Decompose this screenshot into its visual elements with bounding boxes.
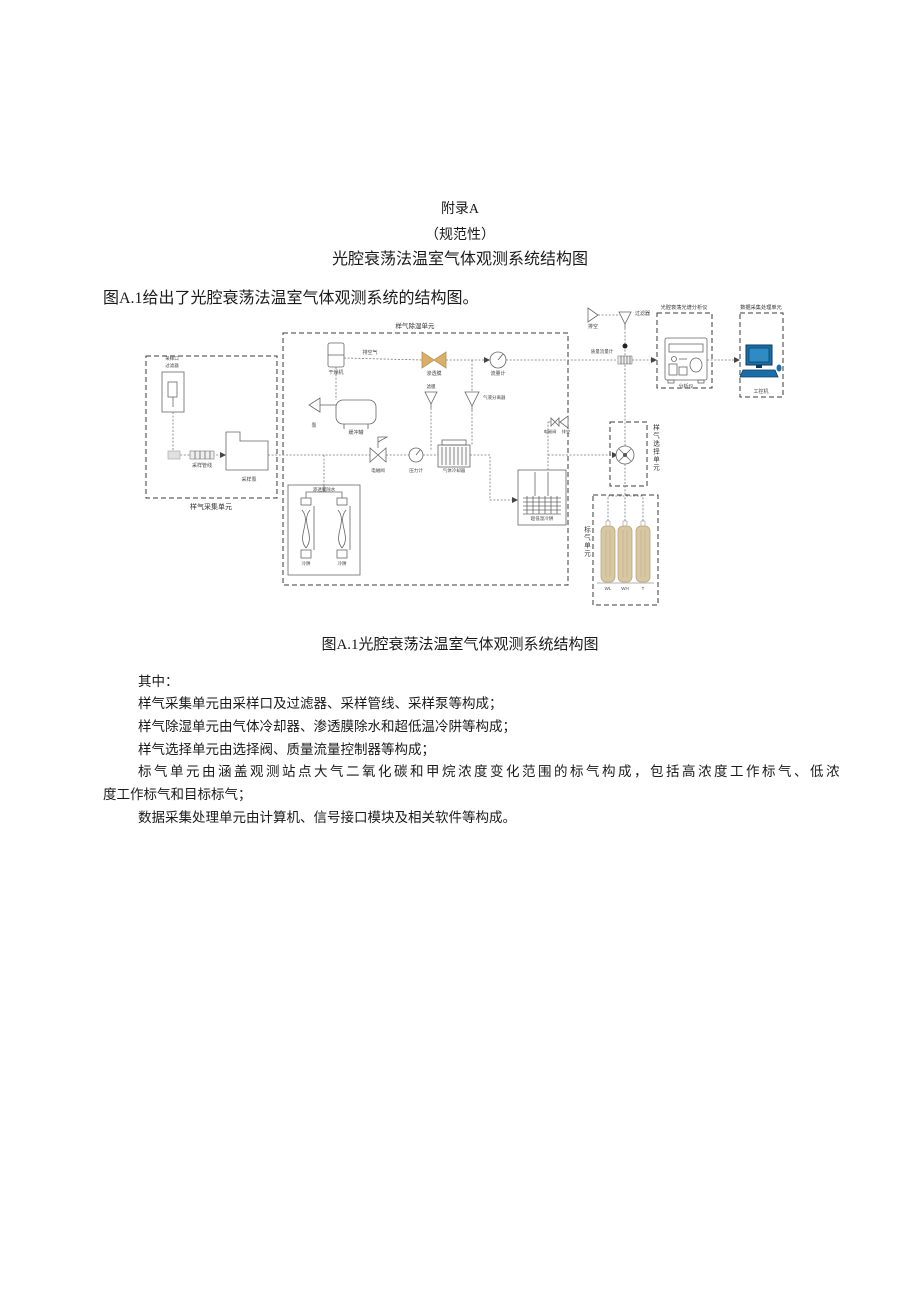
dehumid-unit-label: 样气除湿单元 (396, 324, 435, 331)
lead-in: 其中： (138, 674, 179, 691)
normative-note: （规范性） (0, 227, 920, 245)
gas-cylinders (597, 521, 654, 583)
dryer-label: 干燥机 (328, 371, 343, 376)
body-line-3: 样气选择单元由选择阀、质量流量控制器等构成； (138, 742, 435, 759)
top-vent-horn (588, 308, 620, 322)
sample-tube-connector (190, 451, 214, 459)
inlet-label: 采样口 (165, 357, 179, 362)
cylinder-high-label: WH (621, 587, 629, 592)
body-line-5: 度工作标气和目标标气； (103, 787, 252, 804)
arrow-into-analyzer (651, 357, 657, 363)
buffer-label: 缓冲罐 (348, 431, 363, 436)
solenoid-dot (623, 344, 628, 349)
internal-pump-horn (309, 398, 336, 412)
top-filter-funnel (619, 312, 631, 328)
gas-liquid-separator-funnel (465, 392, 479, 410)
trap-a-label: 冷阱 (302, 562, 311, 567)
body-line-6: 数据采集处理单元由计算机、信号接口模块及相关软件等构成。 (138, 810, 516, 827)
body-line-2: 样气除湿单元由气体冷却器、渗透膜除水和超低温冷阱等构成； (138, 719, 516, 736)
vent-air-line (344, 358, 422, 360)
arrow-into-flowmeter (484, 357, 490, 363)
standard-gas-lines (608, 496, 643, 521)
inlet-filter-label: 过滤器 (165, 364, 179, 369)
gas-cooler (438, 440, 470, 467)
analyzer-instrument (665, 338, 707, 383)
dryer-canister (328, 343, 344, 367)
sample-line-label: 采样管线 (192, 464, 212, 469)
top-filter-label: 过滤器 (635, 312, 650, 317)
trap-b-label: 冷阱 (338, 562, 347, 567)
pressure-gauge (409, 448, 423, 462)
membrane-unit-label: 渗透膜除水 (313, 488, 336, 493)
system-structure-diagram: 样气采集单元 样气除湿单元 样气选择单元 标气单元 光腔衰荡光谱分析仪 数据采集… (138, 300, 798, 618)
solenoid-label: 电磁阀 (371, 469, 385, 474)
membrane-dryer-subunit (288, 455, 360, 575)
vent-air-label: 排空气 (362, 351, 377, 356)
flowmeter-gauge (490, 352, 506, 368)
arrow-into-pump (220, 452, 226, 458)
solenoid-valve (370, 437, 387, 462)
membrane-label: 渗透膜 (426, 372, 441, 377)
mfm-label: 质量流量计 (591, 350, 614, 355)
vent-side-label: 排空 (562, 430, 570, 434)
analyzer-inst-label: 分析仪 (678, 385, 693, 390)
data-unit-label: 数据采集处理单元 (740, 306, 782, 311)
buffer-tank (336, 400, 376, 429)
pressure-label: 压力计 (409, 469, 423, 474)
computer-label: 工控机 (753, 390, 768, 395)
vent-top-label: 排空 (588, 325, 598, 330)
cooler-label: 气体冷却器 (443, 469, 466, 474)
selection-unit-label: 样气选择单元 (651, 424, 658, 472)
arrow-into-cryotrap (512, 497, 518, 503)
body-line-1: 样气采集单元由采样口及过滤器、采样管线、采样泵等构成； (138, 696, 503, 713)
membrane-filter-funnel (425, 392, 437, 408)
sample-pump-shape (226, 432, 268, 470)
sample-pump-label: 采样泵 (241, 478, 256, 483)
arrow-into-data-unit (734, 357, 740, 363)
vent-valve-label: 电磁阀 (544, 430, 557, 434)
line-fitting (168, 451, 180, 459)
vent-branch (548, 416, 568, 428)
figure-caption: 图A.1光腔衰荡法温室气体观测系统结构图 (0, 636, 920, 655)
selector-valve (616, 446, 634, 464)
cylinder-target-label: T (642, 587, 645, 592)
cryotrap-label: 超低温冷阱 (531, 517, 554, 522)
membrane-bowtie (422, 352, 446, 368)
sampling-unit-label: 样气采集单元 (190, 504, 232, 511)
appendix-title: 附录A (0, 201, 920, 219)
pump-label: 泵 (311, 424, 316, 429)
flowmeter-label: 流量计 (490, 372, 505, 377)
separator-label: 气液分离器 (483, 396, 506, 401)
sampling-inlet-filter (162, 372, 184, 412)
analyzer-unit-label: 光腔衰荡光谱分析仪 (661, 306, 708, 311)
mem-filter-label: 滤膜 (427, 385, 436, 390)
body-line-4: 标气单元由涵盖观测站点大气二氧化碳和甲烷浓度变化范围的标气构成，包括高浓度工作标… (138, 764, 842, 781)
standard-unit-label: 标气单元 (582, 526, 589, 558)
document-page: 附录A （规范性） 光腔衰荡法温室气体观测系统结构图 图A.1给出了光腔衰荡法温… (0, 0, 920, 1301)
main-title: 光腔衰荡法温室气体观测系统结构图 (0, 250, 920, 270)
cylinder-low-label: WL (605, 587, 612, 592)
cooler-to-trap-line (470, 455, 515, 500)
mass-flow-element (618, 356, 632, 364)
computer-icon (740, 345, 782, 377)
diagram-canvas (138, 300, 798, 618)
